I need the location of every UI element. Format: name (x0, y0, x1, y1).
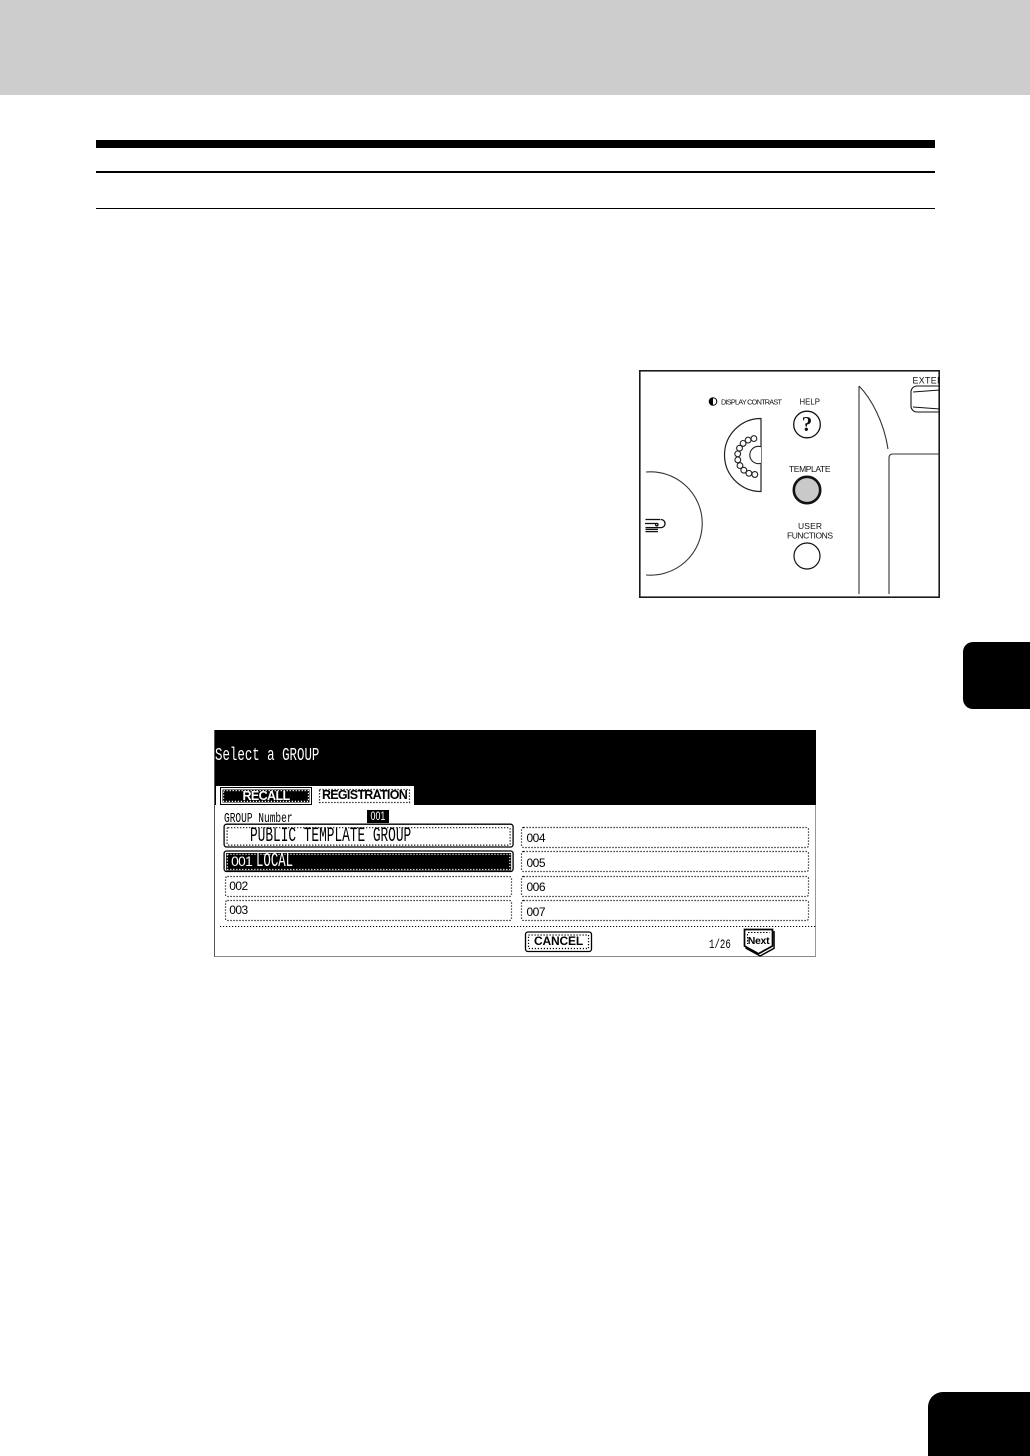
svg-text:EXTEN: EXTEN (913, 376, 941, 386)
svg-text:FUNCTIONS: FUNCTIONS (787, 531, 833, 541)
svg-text:TEMPLATE: TEMPLATE (789, 464, 831, 474)
svg-text:Next: Next (748, 935, 770, 947)
svg-text:?: ? (802, 412, 813, 436)
svg-text:DISPLAY CONTRAST: DISPLAY CONTRAST (721, 398, 783, 407)
svg-text:HELP: HELP (800, 398, 821, 407)
svg-text:USER: USER (798, 521, 822, 531)
